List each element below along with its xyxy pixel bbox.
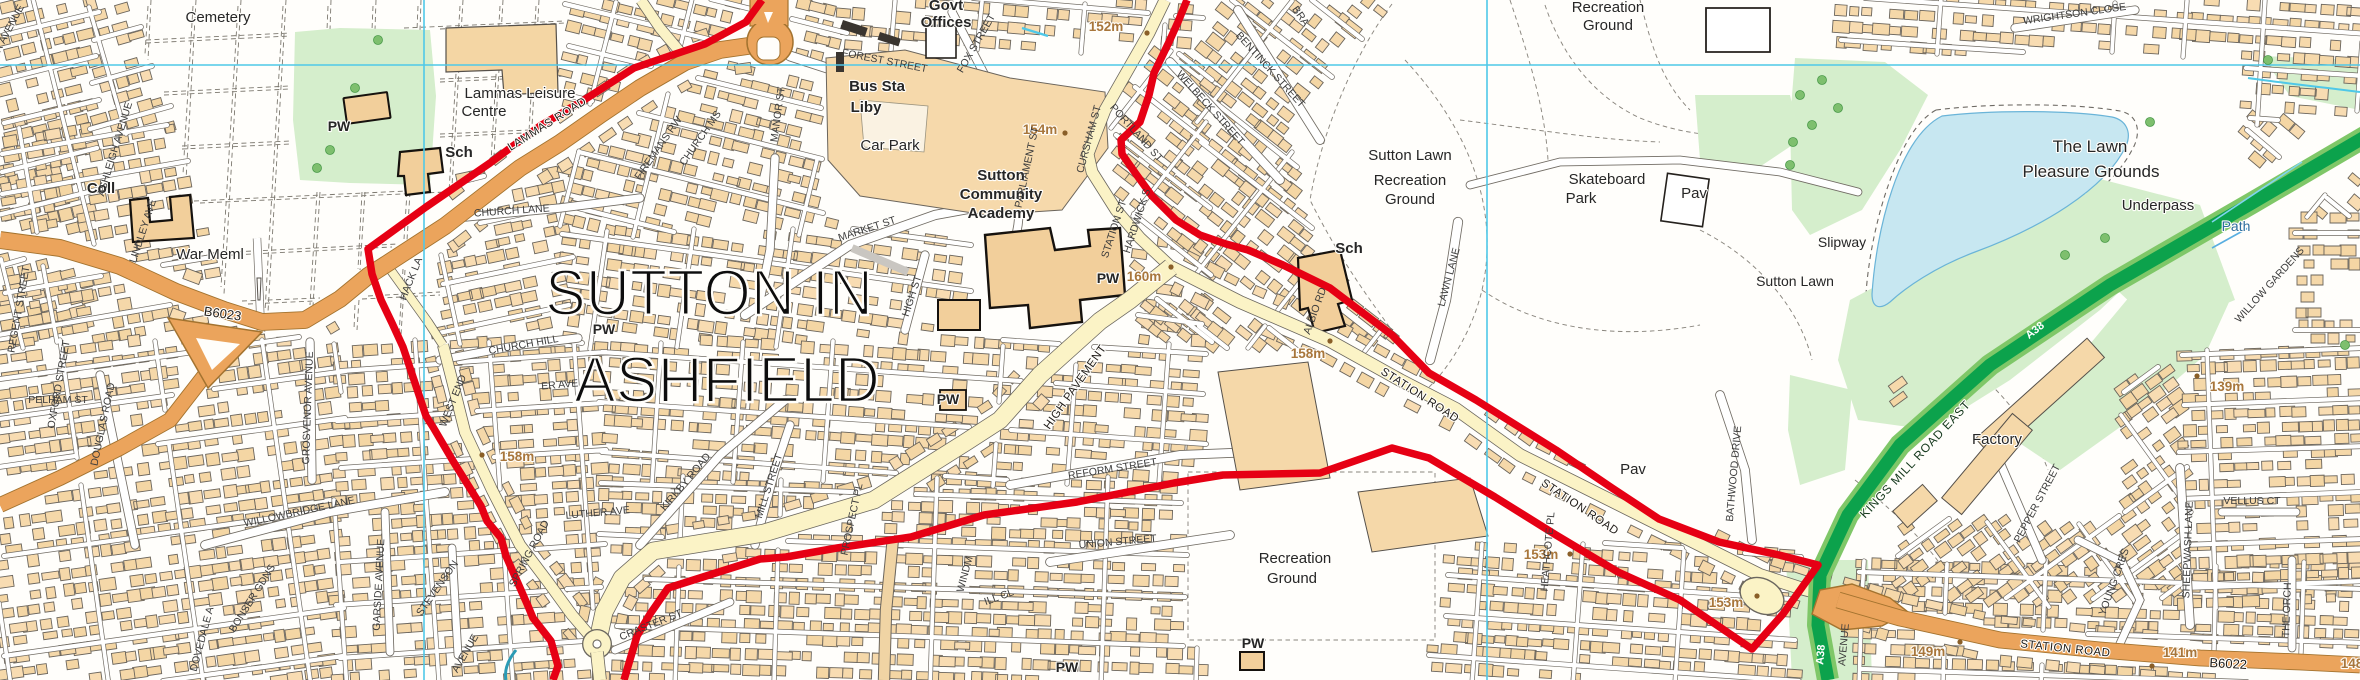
svg-text:Centre: Centre (461, 103, 506, 120)
svg-text:Slipway: Slipway (1818, 234, 1866, 250)
svg-text:Cemetery: Cemetery (185, 9, 251, 26)
svg-text:PW: PW (1056, 659, 1079, 675)
svg-text:Factory: Factory (1972, 431, 2023, 448)
svg-text:Ground: Ground (1267, 570, 1317, 587)
svg-text:Path: Path (2222, 218, 2251, 234)
svg-text:158m: 158m (1291, 346, 1326, 361)
svg-text:Sch: Sch (445, 144, 473, 161)
svg-text:Park: Park (1566, 190, 1597, 207)
svg-text:Pav: Pav (1620, 461, 1646, 478)
svg-text:Recreation: Recreation (1374, 172, 1447, 189)
svg-text:148: 148 (2341, 656, 2360, 671)
svg-text:160m: 160m (1127, 269, 1162, 284)
svg-text:Car Park: Car Park (860, 137, 920, 154)
svg-text:Sch: Sch (1335, 240, 1363, 257)
svg-text:Bus Sta: Bus Sta (849, 78, 906, 95)
svg-text:Sutton Lawn: Sutton Lawn (1756, 273, 1834, 289)
svg-text:153m: 153m (1709, 595, 1744, 610)
svg-text:152m: 152m (1089, 19, 1124, 34)
svg-text:139m: 139m (2210, 379, 2245, 394)
svg-text:War Meml: War Meml (176, 246, 244, 263)
svg-text:Community: Community (960, 186, 1043, 203)
svg-text:B6022: B6022 (2209, 655, 2247, 672)
svg-text:PELHAM ST: PELHAM ST (28, 394, 88, 406)
svg-text:PW: PW (1097, 270, 1120, 286)
svg-text:Offices: Offices (921, 14, 972, 31)
svg-text:Underpass: Underpass (2122, 197, 2195, 214)
svg-text:SUTTON IN: SUTTON IN (545, 256, 873, 329)
svg-text:VELLUS CT: VELLUS CT (2223, 495, 2281, 507)
svg-text:Liby: Liby (851, 99, 882, 116)
svg-text:Ground: Ground (1583, 17, 1633, 34)
svg-text:158m: 158m (500, 449, 535, 464)
svg-text:ASHFIELD: ASHFIELD (574, 343, 880, 416)
svg-text:149m: 149m (1911, 644, 1946, 659)
svg-text:141m: 141m (2163, 645, 2198, 660)
svg-text:Ground: Ground (1385, 191, 1435, 208)
svg-text:Govt: Govt (929, 0, 963, 14)
svg-text:THE ORCH: THE ORCH (2280, 582, 2294, 637)
svg-text:PW: PW (328, 118, 351, 134)
svg-text:Recreation: Recreation (1572, 0, 1645, 16)
svg-text:PW: PW (937, 391, 960, 407)
svg-text:PW: PW (1242, 635, 1265, 651)
svg-text:Skateboard: Skateboard (1569, 171, 1646, 188)
svg-text:The Lawn: The Lawn (2053, 137, 2128, 156)
svg-text:Academy: Academy (968, 205, 1035, 222)
svg-text:Pav: Pav (1681, 185, 1707, 202)
svg-text:PW: PW (593, 321, 616, 337)
svg-text:Recreation: Recreation (1259, 550, 1332, 567)
svg-text:Lammas Leisure: Lammas Leisure (465, 85, 576, 102)
svg-text:Sutton Lawn: Sutton Lawn (1368, 147, 1451, 164)
svg-text:Pleasure Grounds: Pleasure Grounds (2022, 162, 2159, 181)
svg-text:A38: A38 (1814, 644, 1828, 665)
